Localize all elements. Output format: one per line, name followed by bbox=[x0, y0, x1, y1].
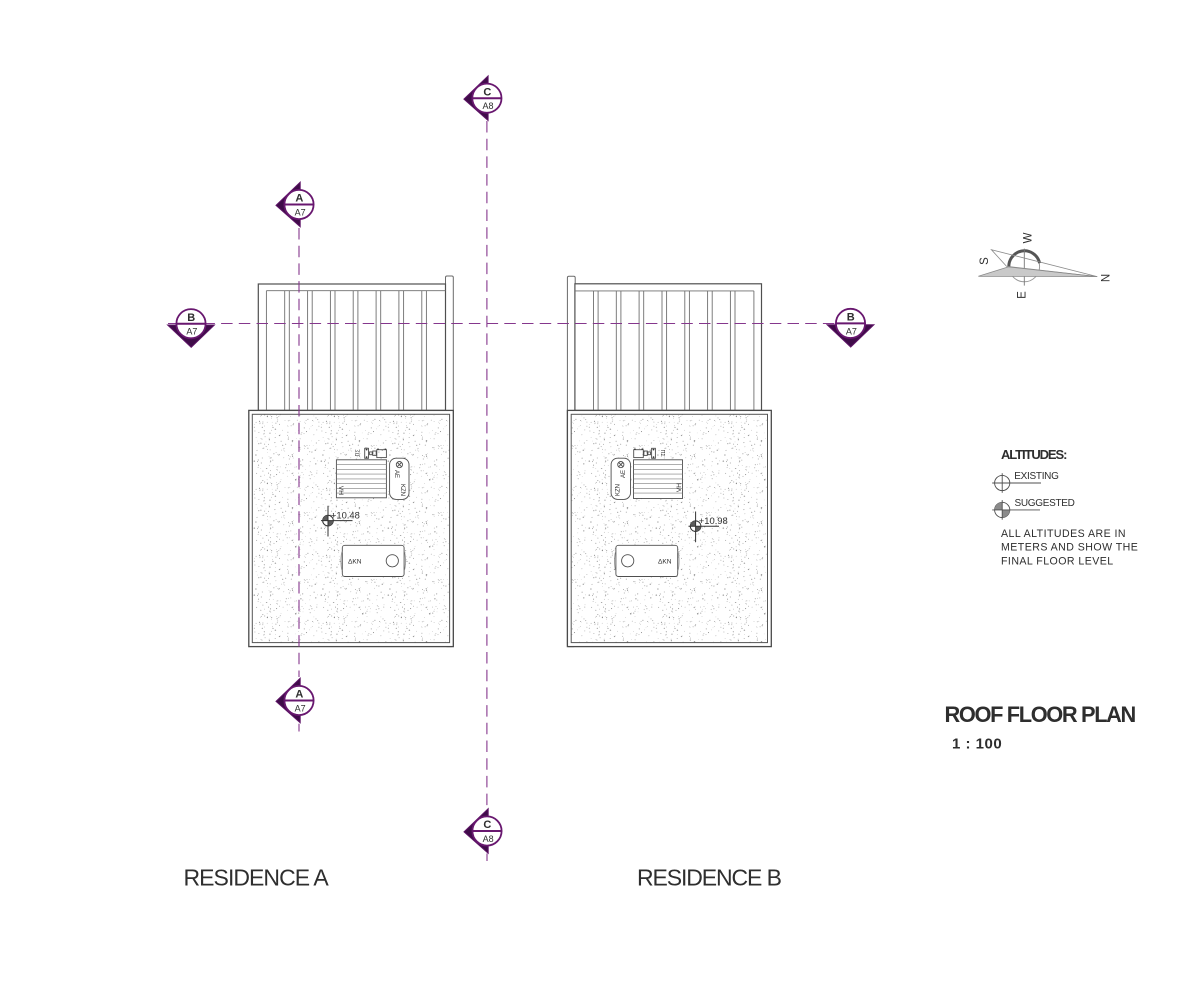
svg-text:A: A bbox=[295, 689, 303, 701]
svg-text:ALL ALTITUDES ARE IN: ALL ALTITUDES ARE IN bbox=[1001, 528, 1126, 540]
svg-text:S: S bbox=[979, 257, 991, 265]
svg-text:C: C bbox=[483, 86, 491, 98]
svg-text:ΚΖΝ: ΚΖΝ bbox=[616, 484, 622, 496]
svg-text:A7: A7 bbox=[186, 327, 197, 337]
svg-text:1 : 100: 1 : 100 bbox=[952, 736, 1002, 753]
svg-text:W: W bbox=[1023, 232, 1035, 243]
svg-text:ΔΚΝ: ΔΚΝ bbox=[658, 558, 672, 565]
svg-text:A8: A8 bbox=[482, 101, 493, 111]
svg-text:ΠΣ: ΠΣ bbox=[356, 449, 362, 457]
svg-text:+10.98: +10.98 bbox=[699, 515, 728, 526]
svg-text:A7: A7 bbox=[295, 704, 306, 714]
svg-text:ΗΛ: ΗΛ bbox=[675, 483, 682, 493]
svg-text:FINAL FLOOR LEVEL: FINAL FLOOR LEVEL bbox=[1001, 555, 1114, 567]
svg-text:ΠΣ: ΠΣ bbox=[659, 450, 665, 458]
svg-text:ΚΖΝ: ΚΖΝ bbox=[399, 484, 405, 496]
svg-text:C: C bbox=[483, 819, 491, 831]
svg-text:ROOF FLOOR PLAN: ROOF FLOOR PLAN bbox=[945, 702, 1136, 727]
svg-text:B: B bbox=[847, 312, 855, 324]
svg-text:RESIDENCE A: RESIDENCE A bbox=[184, 865, 330, 891]
svg-text:ΔΚΝ: ΔΚΝ bbox=[348, 558, 362, 565]
svg-text:ΗΛ: ΗΛ bbox=[339, 485, 346, 495]
svg-text:A7: A7 bbox=[295, 208, 306, 218]
svg-text:+10.48: +10.48 bbox=[331, 509, 360, 520]
svg-text:RESIDENCE B: RESIDENCE B bbox=[637, 865, 782, 891]
svg-text:E: E bbox=[1017, 291, 1029, 299]
svg-text:ΑΕ: ΑΕ bbox=[621, 470, 627, 478]
svg-text:A8: A8 bbox=[483, 834, 494, 844]
svg-text:EXISTING: EXISTING bbox=[1014, 471, 1059, 482]
svg-text:N: N bbox=[1101, 274, 1113, 282]
svg-text:A7: A7 bbox=[846, 326, 857, 336]
svg-text:ALTITUDES:: ALTITUDES: bbox=[1001, 447, 1067, 462]
svg-text:B: B bbox=[187, 312, 195, 324]
svg-text:A: A bbox=[295, 193, 303, 205]
svg-text:METERS AND SHOW THE: METERS AND SHOW THE bbox=[1001, 542, 1138, 554]
svg-text:ΑΕ: ΑΕ bbox=[393, 470, 399, 478]
svg-text:SUGGESTED: SUGGESTED bbox=[1015, 498, 1075, 509]
